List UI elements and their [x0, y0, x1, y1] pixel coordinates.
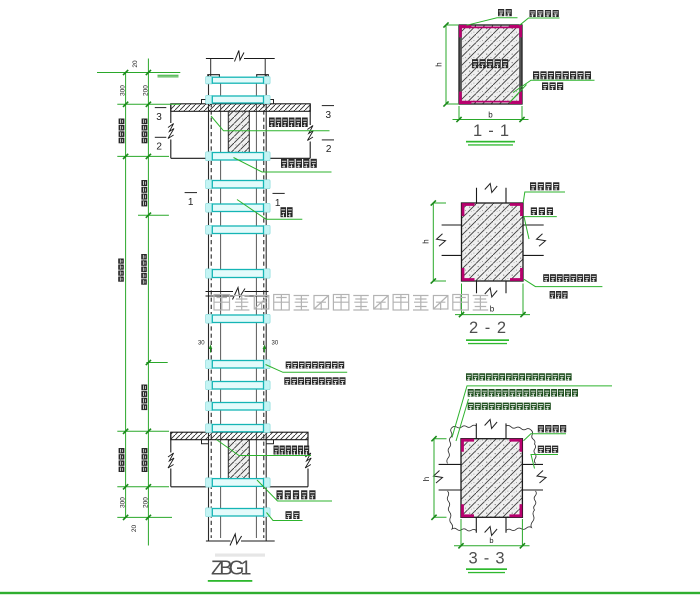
svg-text:1: 1	[188, 197, 194, 208]
svg-text:2: 2	[156, 142, 162, 153]
svg-text:20: 20	[131, 525, 138, 533]
svg-text:1: 1	[275, 198, 281, 209]
svg-text:1-1: 1-1	[473, 122, 509, 140]
svg-text:2-2: 2-2	[469, 319, 506, 337]
svg-text:3: 3	[326, 110, 332, 121]
svg-text:h: h	[422, 239, 431, 243]
svg-text:3: 3	[156, 112, 162, 123]
svg-text:2: 2	[326, 144, 332, 155]
svg-text:b: b	[488, 111, 493, 120]
svg-text:20: 20	[132, 60, 139, 68]
svg-text:h: h	[435, 62, 444, 66]
svg-text:b: b	[490, 305, 495, 314]
svg-text:300: 300	[119, 85, 126, 96]
svg-text:ZBG1: ZBG1	[211, 558, 252, 580]
svg-text:200: 200	[142, 497, 149, 508]
svg-text:3-3: 3-3	[469, 550, 505, 568]
svg-text:30: 30	[272, 341, 279, 347]
svg-text:300: 300	[119, 497, 126, 508]
svg-text:30: 30	[198, 341, 205, 347]
svg-text:b: b	[489, 536, 493, 545]
svg-text:h: h	[422, 477, 431, 481]
svg-text:200: 200	[142, 85, 149, 96]
